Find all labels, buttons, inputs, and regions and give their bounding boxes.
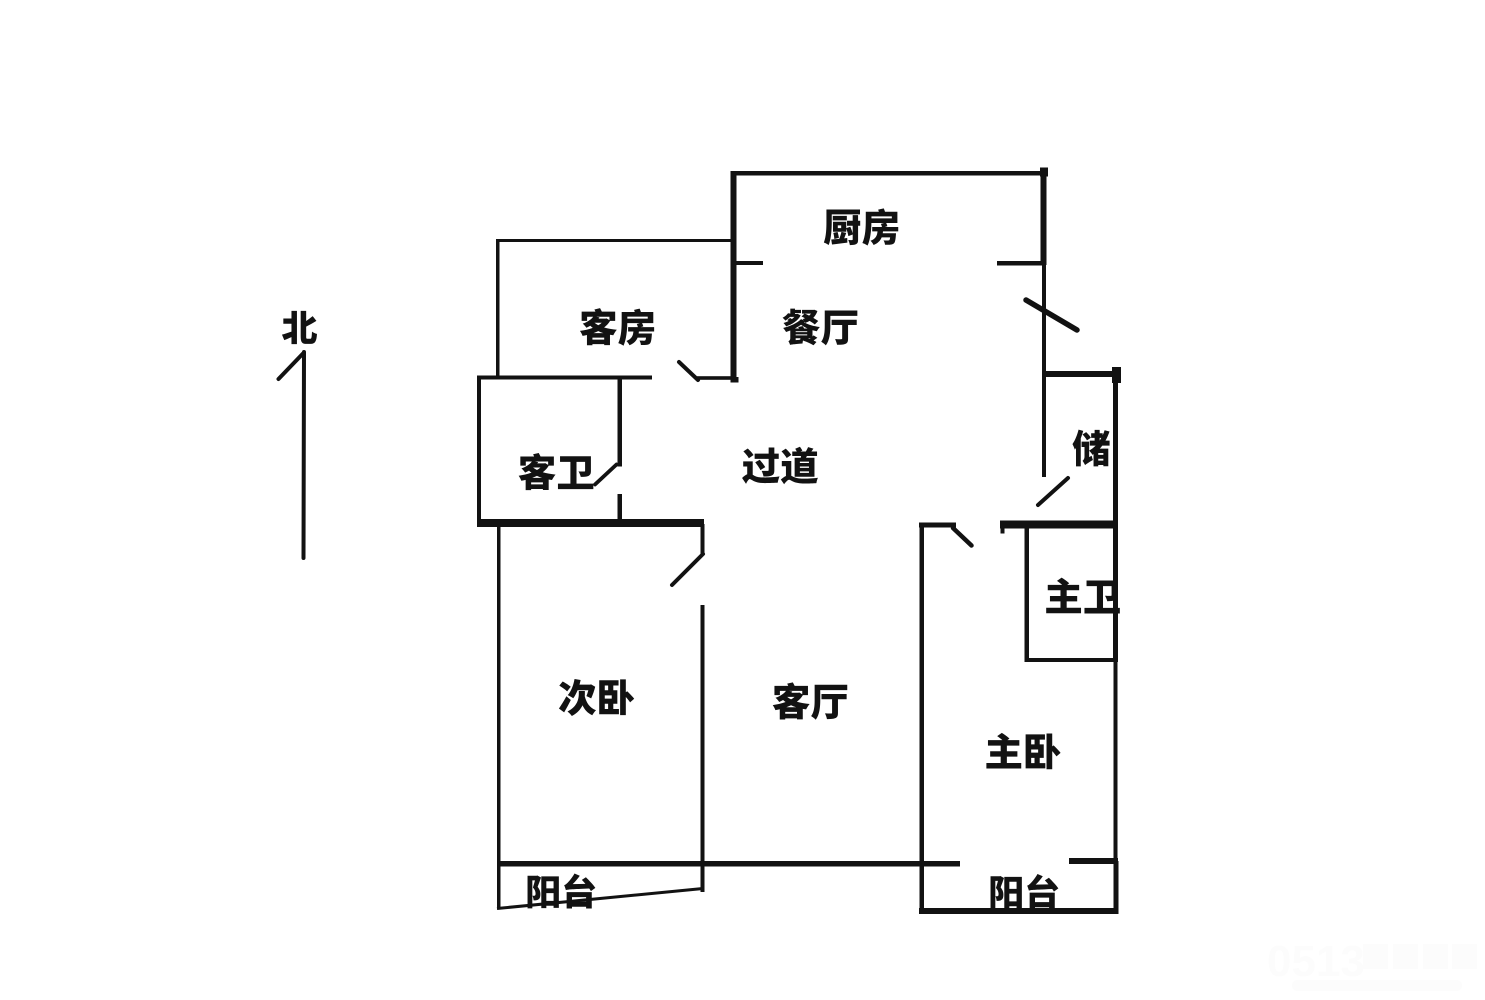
svg-text:0513: 0513 [1267,937,1365,986]
